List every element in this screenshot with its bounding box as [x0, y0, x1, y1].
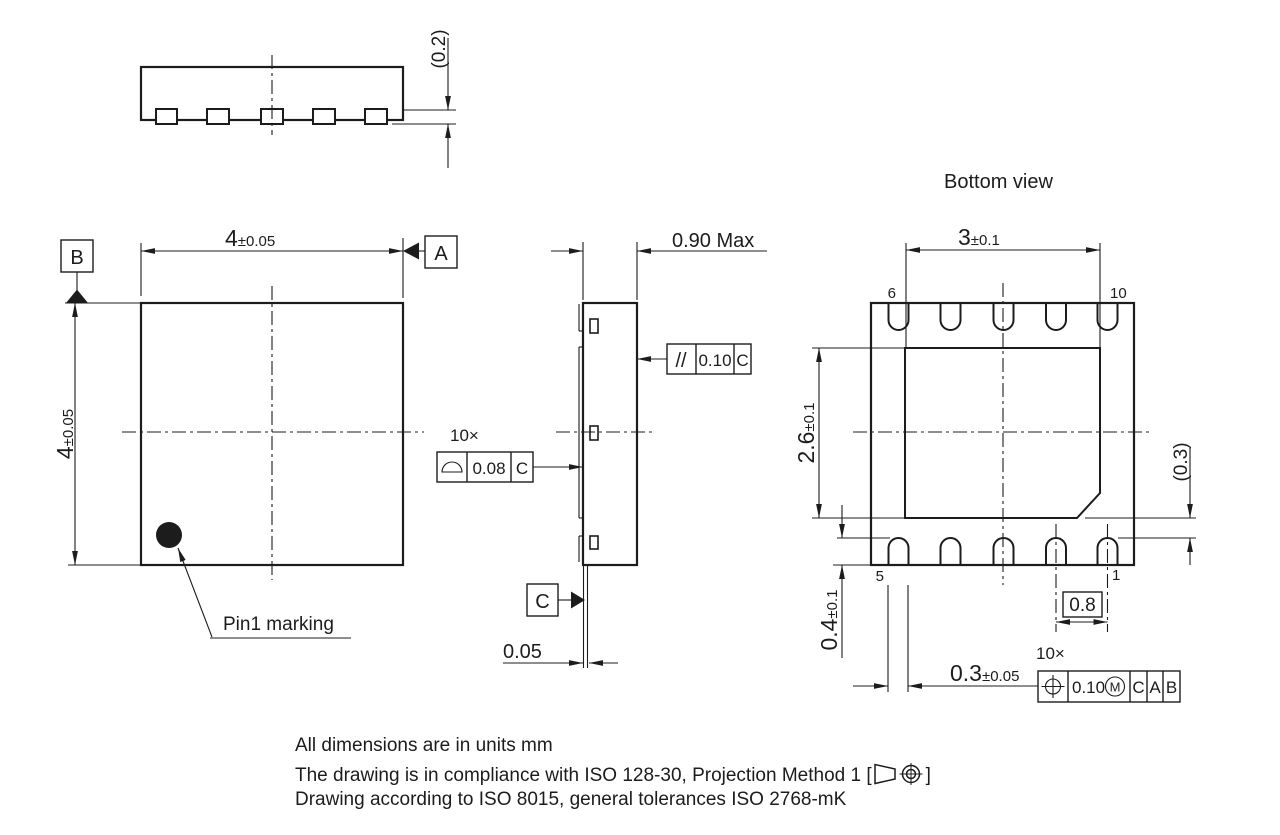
parallelism-datum: C	[736, 351, 748, 370]
datum-triangle	[571, 592, 585, 609]
position-datum-2: A	[1149, 678, 1161, 697]
drawing-sheet: (0.2) 4±0.05 A B	[0, 0, 1280, 835]
seating-plane	[584, 565, 588, 668]
body-height-dimension: 4±0.05	[52, 303, 141, 565]
note-line-2-text: The drawing is in compliance with ISO 12…	[295, 765, 872, 786]
dim-pin-pitch: 0.8	[1069, 595, 1095, 616]
position-datum-1: C	[1132, 678, 1144, 697]
dim-lead-thickness: (0.2)	[429, 29, 450, 68]
datum-triangle	[66, 290, 88, 304]
bottom-view-title: Bottom view	[944, 171, 1053, 193]
pin1-marking-label: Pin1 marking	[223, 614, 334, 635]
pin-number-6: 6	[888, 285, 896, 302]
datum-a-label: A	[434, 243, 448, 265]
dim-height-max: 0.90 Max	[672, 230, 754, 252]
note-line-1: All dimensions are in units mm	[295, 735, 553, 757]
lead-thickness-dimension: (0.2)	[392, 29, 456, 168]
position-symbol-icon	[1042, 675, 1065, 698]
side-profile-view: (0.2)	[141, 29, 456, 168]
position-fcf: 10× 0.10 M C A B	[1036, 644, 1180, 702]
datum-c: C	[527, 584, 585, 616]
parallelism-symbol-icon: //	[675, 350, 687, 372]
lead-edge-lines	[579, 304, 598, 562]
modifier-letter: M	[1110, 680, 1121, 695]
pin-number-1: 1	[1112, 567, 1120, 584]
standoff-dimension: 0.05	[503, 641, 618, 663]
position-datum-3: B	[1166, 678, 1177, 697]
pin-number-5: 5	[876, 568, 884, 585]
note-line-2-bracket: ]	[926, 765, 931, 786]
dim-body-height: 4±0.05	[52, 409, 78, 459]
profile-symbol-icon	[442, 462, 462, 472]
pad-to-pin-gap-dimension: (0.3)	[1085, 442, 1196, 565]
dim-pin-width: 0.3±0.05	[950, 660, 1019, 686]
profile-fcf: 10× 0.08 C	[437, 426, 583, 482]
package-outline-drawing: (0.2) 4±0.05 A B	[0, 0, 1280, 835]
pin1-marking: Pin1 marking	[156, 522, 351, 638]
pin-pitch-dimension: 0.8	[1056, 592, 1108, 622]
top-view: 4±0.05 A B 4±0.05 Pin1 marking	[52, 225, 457, 638]
dim-pad-to-pin-gap: (0.3)	[1171, 442, 1192, 481]
datum-c-label: C	[535, 591, 549, 613]
dim-pad-width: 3±0.1	[958, 224, 1000, 250]
parallelism-fcf: // 0.10 C	[637, 344, 751, 374]
side-view: 0.90 Max // 0.10 C 10× 0.08 C	[437, 230, 767, 668]
dim-pin-length: 0.4±0.1	[816, 589, 842, 650]
datum-b: B	[61, 240, 141, 303]
pin1-dot	[156, 522, 182, 548]
profile-count: 10×	[450, 426, 479, 445]
bottom-view: Bottom view 6 10 5 1	[793, 171, 1196, 702]
first-angle-projection-icon	[872, 762, 926, 786]
datum-triangle	[403, 243, 419, 260]
profile-datum: C	[516, 459, 528, 478]
datum-b-label: B	[70, 247, 83, 269]
dim-pad-height: 2.6±0.1	[793, 402, 819, 463]
parallelism-tolerance: 0.10	[698, 351, 731, 370]
height-max-dimension: 0.90 Max	[551, 230, 767, 300]
position-tolerance: 0.10	[1072, 678, 1105, 697]
note-line-2: The drawing is in compliance with ISO 12…	[295, 762, 931, 787]
dim-standoff: 0.05	[503, 641, 542, 663]
pad-height-dimension: 2.6±0.1	[793, 348, 905, 518]
pin-number-10: 10	[1110, 285, 1127, 302]
profile-tolerance: 0.08	[472, 459, 505, 478]
pin-width-dimension: 0.3±0.05	[853, 585, 1038, 692]
material-modifier-icon: M	[1106, 677, 1125, 696]
position-count: 10×	[1036, 644, 1065, 663]
dim-body-width: 4±0.05	[225, 225, 275, 251]
note-line-3: Drawing according to ISO 8015, general t…	[295, 789, 846, 811]
datum-a: A	[403, 236, 457, 268]
